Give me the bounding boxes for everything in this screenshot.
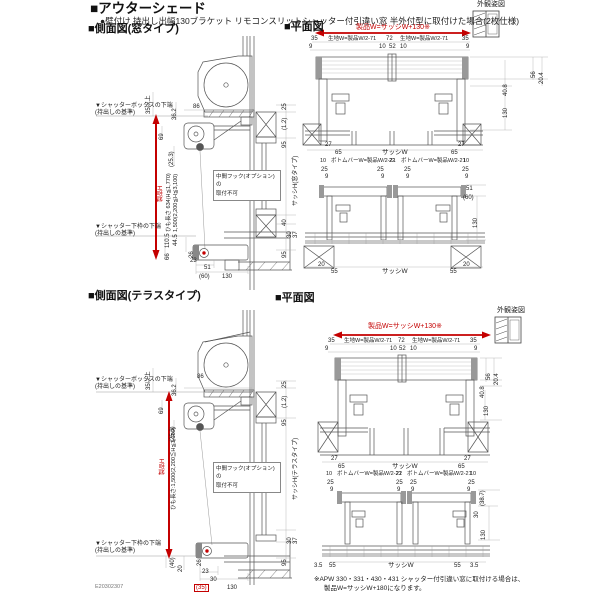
dim: 35 (462, 36, 469, 42)
dim: 25 (468, 480, 475, 486)
fabric-width-label: 生地W=製品W/2-71 (400, 37, 448, 43)
dim: (25.3) (169, 151, 175, 167)
dim: 23 (190, 258, 197, 264)
dim: 10 (400, 44, 407, 50)
dim-min-clearance: 35以上 (146, 95, 152, 114)
dim: 52 (389, 44, 396, 50)
dim: 25 (282, 103, 288, 110)
dim: 40.8 (480, 386, 486, 398)
dim: 10 (463, 159, 469, 165)
dim: 66 (165, 253, 171, 260)
dim: 51 (466, 186, 473, 192)
dim: 9 (465, 174, 468, 180)
dim: 130 (222, 274, 232, 280)
product-height-label: 製品H (160, 459, 166, 475)
dim: 40.8 (503, 84, 509, 96)
cord-length-label: ひも長さ 634(H≦1,770) (167, 173, 173, 232)
plan-view-terrace-drawing (318, 332, 502, 563)
dim: 25 (327, 480, 334, 486)
dim: 69 (159, 407, 165, 414)
cord-length-label: ひも長さ:1,500(2,200≦H≦3,100) (172, 427, 178, 510)
appearance-thumbnail-2 (495, 317, 521, 343)
dim: 9 (406, 174, 409, 180)
plan-view-window-drawing (303, 30, 548, 269)
bottom-bar-width-label: ボトムバーW=製品W/2-21 (331, 159, 396, 165)
dim: 56 (531, 71, 537, 78)
dim: 36.2 (172, 384, 178, 396)
dim: 20.4 (494, 373, 500, 385)
sash-width-label: サッシW (388, 563, 414, 570)
dim: 25 (282, 381, 288, 388)
dim: 9 (467, 487, 470, 493)
dim: 25 (404, 167, 411, 173)
sash-height-label: サッシH(テラスタイプ) (293, 438, 299, 500)
dim: 9 (330, 487, 333, 493)
dim: 10 (326, 472, 332, 478)
dim: 110.5 (165, 233, 171, 248)
dim: 55 (454, 563, 461, 569)
dim: 3.5 (314, 563, 322, 569)
sash-width-label: サッシW (392, 464, 418, 471)
sash-height-label: サッシH(窓タイプ) (293, 156, 299, 206)
mid-hook-note-line2: 取付不可 (216, 482, 278, 490)
dim: 9 (474, 346, 477, 352)
shutter-box-ref-label: ▼シャッターボックスの下端 (95, 377, 173, 383)
mid-hook-note: 中間フック(オプション)の 取付不可 (213, 170, 281, 201)
dim: 37 (293, 537, 299, 544)
fabric-width-label: 生地W=製品W/2-71 (328, 37, 376, 43)
dim: 95 (282, 559, 288, 566)
dim: 25 (410, 480, 417, 486)
dim: 72 (386, 36, 393, 42)
dim: 35 (311, 36, 318, 42)
dim: 10 (390, 346, 397, 352)
dim: 55 (329, 563, 336, 569)
shutter-box-ref-label2: (持出しの基準) (95, 110, 135, 116)
product-width-label: 製品W=サッシW+130※ (368, 323, 442, 330)
section2-side-title: ■側面図(テラスタイプ) (88, 291, 201, 302)
dim: 130 (227, 585, 237, 591)
dim: 10 (470, 472, 476, 478)
product-width-label: 製品W=サッシW+130※ (356, 24, 430, 31)
page-title: ■アウターシェード (90, 2, 206, 16)
dim: 3.5 (470, 563, 478, 569)
dim: 52 (399, 346, 406, 352)
dim: 130 (503, 108, 509, 118)
appearance-label-1: 外観姿図 (477, 1, 505, 8)
dim: 25 (377, 167, 384, 173)
fabric-width-label: 生地W=製品W/2-71 (412, 339, 460, 345)
footnote-line1: ※APW 330・331・430・431 シャッター付引違い窓に取付ける場合は、 (314, 577, 524, 584)
shutter-sill-ref-label2: (持出しの基準) (95, 548, 135, 554)
dim: 27 (464, 456, 471, 462)
dim: 20 (178, 565, 184, 572)
dim: 44.5 (173, 234, 179, 246)
dim: (60) (463, 195, 474, 201)
dim-highlight: (35) (194, 584, 209, 592)
dim: 20.4 (539, 72, 545, 84)
dim: 27 (325, 142, 332, 148)
dim: 51 (204, 265, 211, 271)
shutter-sill-ref-label: ▼シャッター下枠の下端 (95, 541, 161, 547)
dim: 10 (410, 346, 417, 352)
dim: 95 (282, 419, 288, 426)
dim: 55 (450, 269, 457, 275)
dim: 9 (325, 346, 328, 352)
dim: 25 (396, 480, 403, 486)
dim: 30 (474, 511, 480, 518)
bottom-bar-width-label: ボトムバーW=製品W/2-21 (337, 472, 402, 478)
side-view-window-drawing (96, 36, 296, 290)
cord-anchor-dot (205, 549, 208, 552)
dim: 65 (458, 464, 465, 470)
shutter-sill-ref-label2: (持出しの基準) (95, 231, 135, 237)
dim: 35 (328, 338, 335, 344)
dim: 40 (282, 219, 288, 226)
dim: (1.2) (282, 118, 288, 130)
dim: 65 (338, 464, 345, 470)
dim: 22 (396, 472, 402, 478)
dim: 56 (486, 373, 492, 380)
dim: 25 (321, 167, 328, 173)
dim: 9 (325, 174, 328, 180)
sash-width-label: サッシW (382, 269, 408, 276)
dim: 35 (470, 338, 477, 344)
dim: 27 (458, 142, 465, 148)
dim: 9 (411, 487, 414, 493)
dim: 20 (463, 262, 470, 268)
shutter-sill-ref-label: ▼シャッター下枠の下端 (95, 224, 161, 230)
dim: 86 (193, 104, 200, 110)
dim: 9 (466, 44, 469, 50)
section2-plan-title: ■平面図 (275, 293, 315, 304)
catalog-page: ■アウターシェード ●壁付け 持出し出幅130ブラケット リモコンスリットシャッ… (0, 0, 600, 600)
bottom-bar-width-label: ボトムバーW=製品W/2-21 (407, 472, 472, 478)
dim: 22 (389, 159, 395, 165)
dim: (40) (170, 557, 176, 568)
dim: 65 (451, 150, 458, 156)
product-height-label: 製品H (158, 186, 164, 202)
dim: 23 (202, 569, 209, 575)
dim: 36.2 (172, 108, 178, 120)
dim: 27 (331, 456, 338, 462)
dim: 10 (379, 44, 386, 50)
section1-plan-title: ■平面図 (284, 22, 324, 33)
dim-min-clearance: 35以上 (146, 371, 152, 390)
dim: 10 (320, 159, 326, 165)
bottom-bar-width-label: ボトムバーW=製品W/2-21 (401, 159, 466, 165)
mid-hook-note-line1: 中間フック(オプション)の (216, 173, 278, 190)
mid-hook-note-line2: 取付不可 (216, 190, 278, 198)
dim: 86 (197, 374, 204, 380)
dim: 9 (309, 44, 312, 50)
shutter-box-ref-label2: (持出しの基準) (95, 384, 135, 390)
cord-length-label2: 1,500(2,200≦H≦3,100) (174, 174, 180, 232)
dim: (60) (199, 274, 210, 280)
dim: 26 (197, 559, 203, 566)
dim: 37 (293, 231, 299, 238)
dim: 20 (318, 262, 325, 268)
appearance-label-2: 外観姿図 (497, 307, 525, 314)
dim: 69 (159, 133, 165, 140)
shutter-box-ref-label: ▼シャッターボックスの下端 (95, 103, 173, 109)
footnote-line2: 製品W=サッシW+180になります。 (324, 586, 426, 593)
dim: 9 (381, 174, 384, 180)
dim: 130 (473, 218, 479, 228)
dim: 30 (210, 577, 217, 583)
dim: 26 (189, 251, 195, 258)
dim: 95 (282, 251, 288, 258)
dim: 72 (398, 338, 405, 344)
dim: 25 (462, 167, 469, 173)
dim: 95 (282, 141, 288, 148)
dim: (1.2) (282, 396, 288, 408)
dim: 130 (481, 530, 487, 540)
mid-hook-note-line1: 中間フック(オプション)の (216, 465, 278, 482)
dim: (38.7) (480, 490, 486, 506)
mid-hook-note: 中間フック(オプション)の 取付不可 (213, 462, 281, 493)
sash-width-label: サッシW (382, 150, 408, 157)
dim: 9 (397, 487, 400, 493)
section1-side-title: ■側面図(窓タイプ) (88, 24, 179, 35)
dim: 65 (335, 150, 342, 156)
document-code: E20302307 (95, 585, 123, 591)
dim: 55 (331, 269, 338, 275)
fabric-width-label: 生地W=製品W/2-71 (344, 339, 392, 345)
cord-anchor-dot (202, 251, 205, 254)
dim: 130 (484, 406, 490, 416)
